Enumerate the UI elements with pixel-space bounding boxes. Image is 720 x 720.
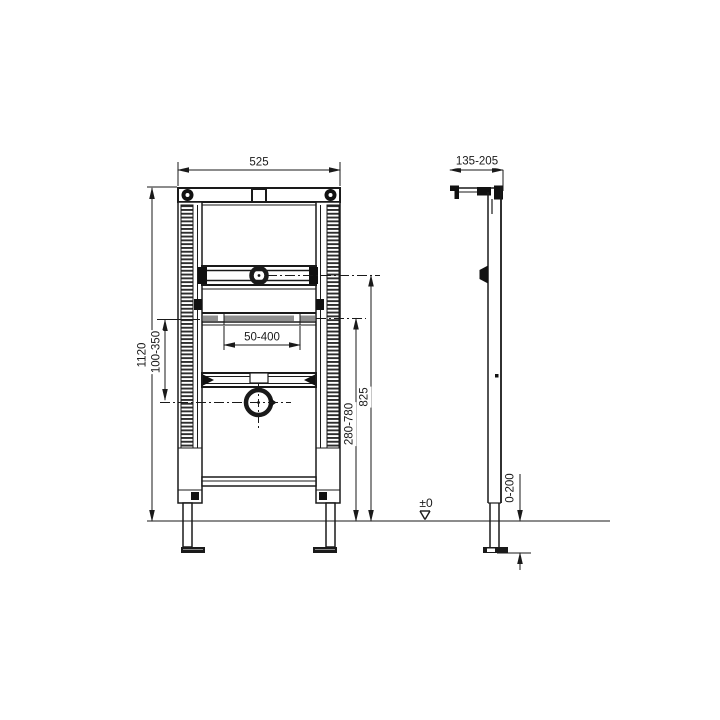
technical-drawing-canvas: 525 1120 100-350 50-400 825 280-780 135-… [0, 0, 720, 720]
dim-label-wall-bracket-depth: 135-205 [455, 156, 499, 168]
rail-clip-right [316, 299, 324, 310]
upper-fixing-rail [198, 266, 318, 289]
center-cutout [252, 189, 266, 202]
rail-right [316, 202, 340, 503]
side-view [450, 186, 508, 554]
bracket-clamp [477, 187, 491, 196]
bottom-clip-left [191, 492, 199, 500]
dim-label-frame-width: 525 [248, 157, 269, 169]
leg-left [183, 503, 192, 547]
side-rail [480, 186, 502, 503]
drain-pipe-fitting [246, 383, 277, 429]
center-notch [250, 373, 268, 383]
rail-left [178, 202, 202, 503]
dim-label-frame-height: 1120 [137, 342, 149, 369]
front-view [178, 188, 340, 553]
floor-level-label: ±0 [419, 497, 432, 509]
bottom-crossbar [202, 477, 316, 486]
floor-level-marker [420, 511, 430, 520]
dim-label-foot-extension: 0-200 [505, 472, 517, 503]
rail-end-cap-left [198, 267, 207, 284]
wall-bracket [450, 186, 503, 215]
installation-frame-drawing [0, 0, 720, 720]
dim-label-outlet-height: 825 [359, 386, 371, 407]
bracket-hook [450, 186, 459, 200]
leg-right [326, 503, 335, 547]
dim-label-slot-spacing: 50-400 [243, 332, 281, 344]
side-foot [483, 547, 508, 553]
dim-label-lower-rail-height: 280-780 [344, 402, 356, 446]
dimension-lines [147, 162, 610, 570]
side-leg-and-foot [483, 503, 508, 553]
crossbar-profile [480, 266, 489, 284]
slotted-mounting-rail [194, 299, 324, 325]
rail-clip-left [194, 299, 202, 310]
bottom-clip-right [319, 492, 327, 500]
legs-and-feet [181, 492, 337, 553]
dim-label-left-adjust-range: 100-350 [151, 330, 163, 374]
fixing-dot [495, 374, 499, 378]
